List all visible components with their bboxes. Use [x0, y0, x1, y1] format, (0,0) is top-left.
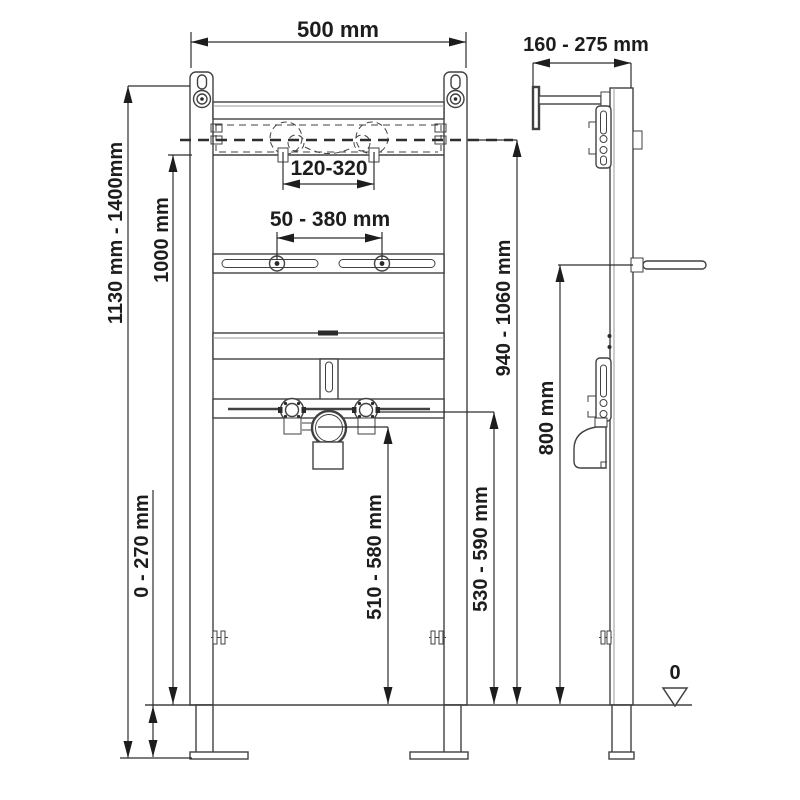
dim-water-supply-height: 530 - 590 mm: [380, 412, 499, 704]
dim-fixing-spacing: 50 - 380 mm: [270, 208, 390, 260]
technical-drawing-page: 500 mm 160 - 275 mm 1130 mm - 1400mm 100…: [0, 0, 800, 800]
dim-label-fixing-spacing: 50 - 380 mm: [270, 208, 390, 231]
dim-upper-rail-height: 1000 mm: [151, 155, 192, 705]
upper-mounting-plate: [589, 106, 611, 168]
siphon-trap: [574, 418, 607, 468]
foot-side: [609, 705, 634, 759]
fixing-rail: [213, 254, 444, 273]
floor-datum: 0: [663, 662, 687, 706]
lower-mounting-plate: [588, 358, 611, 421]
flange-clamp-right: [358, 418, 375, 434]
dim-label-tap-spacing: 120-320: [290, 157, 367, 180]
supply-flange-left: [278, 399, 306, 435]
side-tab: [633, 131, 642, 149]
dim-label-frame-height: 1130 mm - 1400mm: [105, 142, 127, 324]
dim-label-mid-height: 800 mm: [536, 381, 558, 456]
frame-left-rail: [190, 72, 213, 705]
drain-socket: [302, 411, 348, 469]
supply-flange-right: [352, 399, 380, 435]
mid-crossbar: [213, 331, 444, 360]
side-rail: [610, 88, 633, 705]
dim-frame-width: 500 mm: [191, 17, 466, 68]
top-crossbar: [213, 102, 444, 119]
dim-label-upper-rail-height: 1000 mm: [151, 197, 173, 283]
dim-foot-adjustment: 0 - 270 mm: [131, 490, 158, 757]
side-view: [533, 87, 706, 759]
dim-label-drain-outlet-height: 510 - 580 mm: [364, 494, 386, 620]
dim-label-install-depth: 160 - 275 mm: [523, 34, 649, 56]
wall-anchor-plate: [533, 87, 539, 129]
dim-install-depth: 160 - 275 mm: [523, 34, 649, 88]
leg-clamp-left: [211, 631, 228, 644]
dim-tap-spacing: 120-320: [283, 152, 374, 190]
dim-frame-height: 1130 mm - 1400mm: [105, 86, 190, 758]
leg-clamp-right: [429, 631, 446, 644]
flange-clamp-left: [284, 418, 301, 434]
foot-right: [410, 705, 468, 759]
installation-frame-drawing: 500 mm 160 - 275 mm 1130 mm - 1400mm 100…: [0, 0, 800, 800]
wall-anchor-arm: [539, 92, 612, 106]
dim-label-foot-adjustment: 0 - 270 mm: [131, 494, 153, 597]
washbasin-dashed-outline: [215, 122, 442, 154]
dim-label-water-supply-height: 530 - 590 mm: [470, 486, 492, 612]
dim-label-frame-width: 500 mm: [297, 17, 379, 42]
side-threaded-rod: [631, 258, 706, 272]
drain-bracket: [313, 442, 343, 469]
dim-label-basin-rim-height: 940 - 1060 mm: [493, 240, 515, 377]
datum-triangle-icon: [663, 688, 687, 706]
frame-right-rail: [444, 72, 467, 705]
dim-label-floor-datum: 0: [669, 662, 680, 684]
side-leg-clamp: [599, 631, 612, 644]
foot-left: [190, 705, 248, 759]
